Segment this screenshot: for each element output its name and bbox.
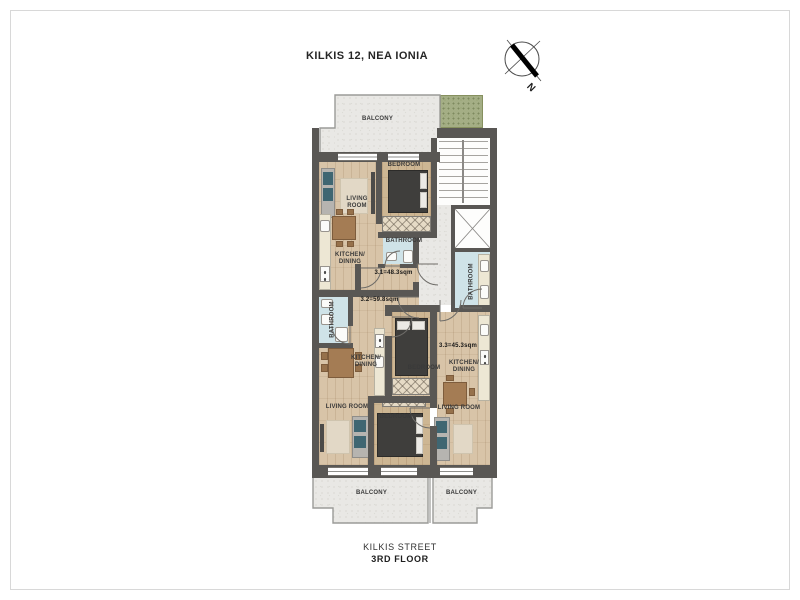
apartment-31-kitchen-label: KITCHEN/ DINING xyxy=(327,252,373,266)
floor-label: 3RD FLOOR xyxy=(300,554,500,564)
pillow xyxy=(412,321,425,330)
chair xyxy=(336,209,343,215)
wall xyxy=(312,290,419,297)
wall xyxy=(368,396,430,403)
compass-icon: N xyxy=(495,28,553,98)
toilet xyxy=(403,250,413,263)
wall xyxy=(385,312,392,316)
wall xyxy=(368,403,374,465)
wall xyxy=(385,336,392,403)
wall xyxy=(451,308,460,312)
sofa-cushion xyxy=(323,172,333,185)
sofa-cushion xyxy=(354,420,366,432)
chair xyxy=(469,388,475,396)
wall xyxy=(430,312,437,408)
tv-unit xyxy=(320,424,324,452)
apartment-33-area-label: 3.3=45.3sqm xyxy=(432,343,484,350)
balcony-bottom-left-label: BALCONY xyxy=(334,490,409,497)
stair-rail xyxy=(462,140,464,203)
stair-flight-left xyxy=(439,141,462,203)
bathroom-sink xyxy=(480,260,489,272)
chair xyxy=(347,241,354,247)
pillow xyxy=(420,173,427,189)
sofa-cushion xyxy=(436,437,447,449)
kitchen-sink xyxy=(320,220,330,232)
wall xyxy=(378,264,385,268)
pillow xyxy=(416,437,423,454)
window xyxy=(440,467,473,476)
wall xyxy=(490,128,497,478)
sofa-cushion xyxy=(354,436,366,448)
window xyxy=(328,467,368,476)
window xyxy=(338,153,377,161)
bathroom-sink xyxy=(386,252,397,261)
wall xyxy=(312,128,319,478)
apartment-31-bedroom-label: BEDROOM xyxy=(380,162,428,169)
chair xyxy=(321,352,328,360)
wall xyxy=(400,264,418,268)
rug xyxy=(326,420,350,454)
chair xyxy=(446,375,454,381)
hallway xyxy=(437,205,451,232)
wardrobe xyxy=(392,378,430,395)
pillow xyxy=(420,192,427,208)
sofa-cushion xyxy=(323,188,333,201)
toilet xyxy=(480,285,489,299)
window xyxy=(388,153,419,161)
wall xyxy=(460,305,490,312)
elevator-shaft xyxy=(455,209,490,248)
apartment-32-kitchen-label: KITCHEN/ DINING xyxy=(342,355,390,369)
stair-flight-right xyxy=(464,141,488,203)
apartment-33-kitchen-label: KITCHEN/ DINING xyxy=(440,360,488,374)
kitchen-sink xyxy=(480,324,489,336)
wall xyxy=(451,205,490,209)
apartment-32-area-label: 3.2=59.8sqm xyxy=(352,297,407,304)
apartment-31-area-label: 3.1=48.3sqm xyxy=(366,270,421,277)
balcony-bottom-right-label: BALCONY xyxy=(434,490,489,497)
shower xyxy=(335,327,348,342)
apartment-32-living-label: LIVING ROOM xyxy=(322,404,372,411)
window xyxy=(381,467,417,476)
drawing-title: KILKIS 12, NEA IONIA xyxy=(242,50,492,62)
wall xyxy=(451,205,455,312)
dining-table xyxy=(443,382,467,406)
dining-table xyxy=(332,216,356,240)
sofa-cushion xyxy=(436,421,447,433)
compass-north-label: N xyxy=(524,81,537,94)
balcony-top-label: BALCONY xyxy=(340,116,415,123)
stove xyxy=(375,334,384,348)
chair xyxy=(336,241,343,247)
apartment-31-living-label: LIVING ROOM xyxy=(344,196,370,210)
wall xyxy=(355,264,361,290)
rug xyxy=(453,424,473,454)
floor-plan-sheet: KILKIS 12, NEA IONIA N xyxy=(0,0,800,600)
wall xyxy=(451,248,490,252)
wall xyxy=(385,305,440,312)
apartment-32-bathroom-label: BATHROOM xyxy=(329,300,336,340)
wall xyxy=(431,138,437,238)
wardrobe xyxy=(382,216,431,232)
wall xyxy=(437,128,497,138)
apartment-31-bathroom-label: BATHROOM xyxy=(380,238,428,245)
balcony-top-floor xyxy=(335,95,440,152)
chair xyxy=(321,364,328,372)
balcony-top-floor-step xyxy=(320,128,335,152)
tv-unit xyxy=(371,172,375,214)
apartment-33-bedroom-label: BEDROOM xyxy=(372,414,420,421)
wall xyxy=(430,426,437,465)
apartment-33-living-label: LIVING ROOM xyxy=(434,405,484,412)
wall xyxy=(413,282,419,290)
street-label: KILKIS STREET xyxy=(300,542,500,552)
wall xyxy=(316,343,353,348)
pillow xyxy=(397,321,410,330)
wall xyxy=(376,162,382,224)
planter xyxy=(440,95,483,128)
stove xyxy=(320,266,330,282)
apartment-33-bathroom-label: BATHROOM xyxy=(468,262,475,302)
